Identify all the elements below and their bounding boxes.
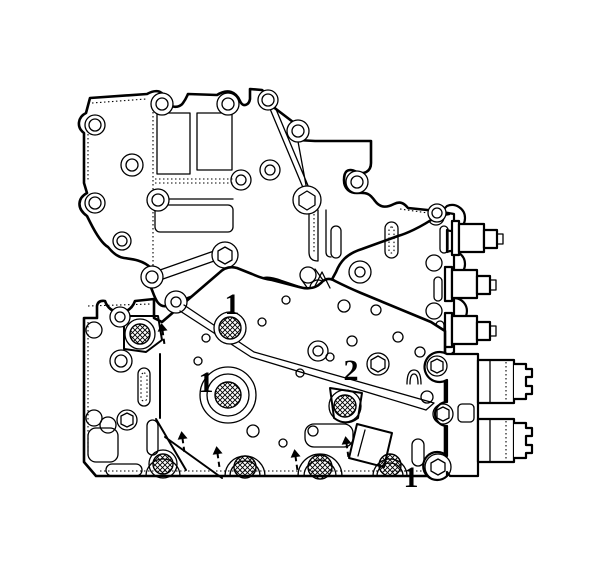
solenoid-large-1 [478,360,532,403]
upper-valve-body-plate [79,89,449,306]
solenoid-large-2 [478,419,532,462]
valve-body-diagram [0,0,612,584]
callout-label-1: 1 [225,290,240,320]
callout-label-4: 1 [404,463,419,493]
solenoid-small-2 [445,267,496,301]
arrow-stem [294,456,298,470]
arrow-stem [345,443,349,457]
arrow-stem [161,330,165,344]
solenoid-small-1 [452,221,503,255]
rod-pivot [165,291,187,313]
lower-valve-body [84,267,445,478]
diagram-stage: 1121 [0,0,612,584]
callout-label-3: 2 [344,356,359,386]
callout-label-2: 1 [199,368,214,398]
arrow-stem [216,453,220,467]
arrow-stem [181,438,185,452]
solenoid-small-3 [445,313,496,347]
plate-bolt-hole [110,307,130,327]
hex-bolt [293,186,321,214]
